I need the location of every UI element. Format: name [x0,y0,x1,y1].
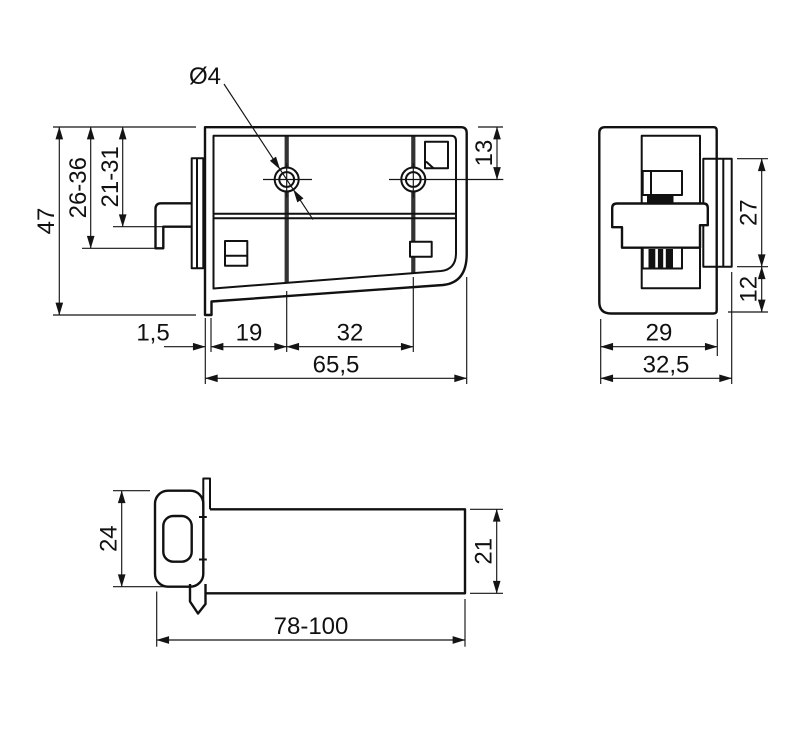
bottom-head-slot [163,516,191,562]
dim-label-body-width: 21 [471,538,498,565]
leader-arrowhead [293,190,303,203]
side-view-dimensions: 27 12 29 32,5 [601,159,768,384]
leader-arrowhead [270,157,280,170]
side-cam-mushroom [612,204,708,248]
dim-label-hole-spacing: 32 [337,320,364,347]
dim-label-length-range: 78-100 [274,613,349,640]
bottom-view: 24 21 78-100 [96,479,503,647]
dim-label-overall-depth: 32,5 [643,351,690,378]
dim-label-body-depth: 29 [646,320,673,347]
front-inner-wall [214,136,457,289]
technical-drawing-svg: Ø4 47 26-36 21-31 13 1,5 19 32 65,5 [0,0,803,756]
front-view: Ø4 47 26-36 21-31 13 1,5 19 32 65,5 [33,63,503,384]
side-thread-stripe [663,249,666,268]
bottom-catch-tab [190,584,206,614]
front-view-dimensions: Ø4 47 26-36 21-31 13 1,5 19 32 65,5 [33,63,503,384]
side-thread-band-upper [647,194,674,203]
dim-label-hole-diameter: Ø4 [189,63,221,90]
side-plunger-top [643,171,682,195]
side-thread-stripe [655,249,658,268]
dim-label-overall-height: 47 [33,208,60,235]
dim-label-edge-to-hole: 19 [236,320,263,347]
dim-label-overall-width: 65,5 [313,351,360,378]
side-thread-band-lower [649,249,674,268]
drawing-canvas: Ø4 47 26-36 21-31 13 1,5 19 32 65,5 [0,0,803,756]
side-view: 27 12 29 32,5 [599,127,768,384]
front-latch-hook [156,203,192,248]
dim-label-adjust-range-inner: 21-31 [97,146,124,207]
front-cutout-on-rib [410,242,432,257]
dim-label-adjust-range-outer: 26-36 [65,157,92,218]
dim-label-lip-thickness: 1,5 [136,320,169,347]
bottom-body-outline [206,509,465,593]
front-cutout-bottom-left [225,241,247,266]
dim-label-slot-to-bottom: 12 [736,276,763,303]
dim-label-hole-to-top: 13 [471,140,498,167]
dim-label-slot-height: 27 [736,199,763,226]
dim-label-head-width: 24 [96,525,123,552]
bottom-view-dimensions: 24 21 78-100 [96,491,503,647]
